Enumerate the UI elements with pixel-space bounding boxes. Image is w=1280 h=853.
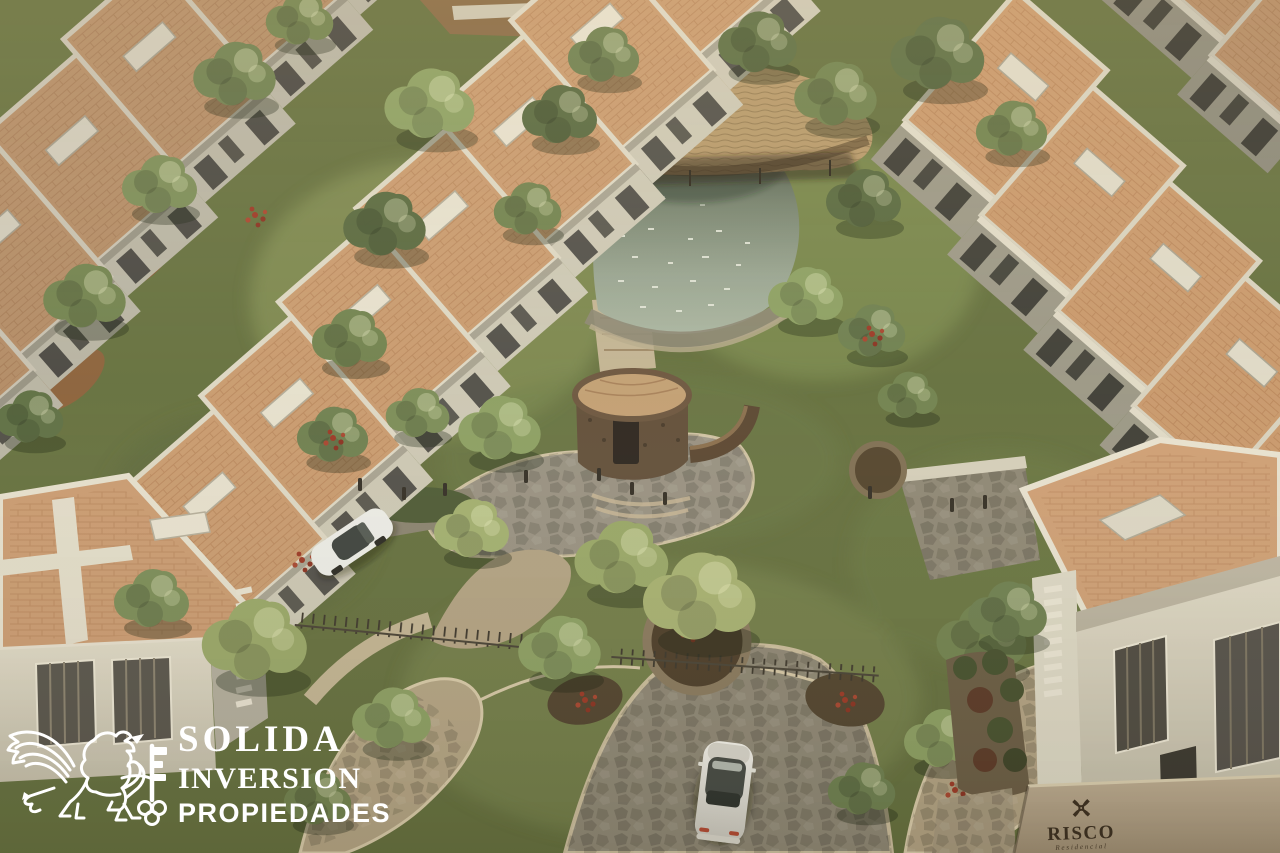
watermark-line2: INVERSION: [178, 764, 391, 794]
watermark-line1: SOLIDA: [178, 721, 391, 758]
winged-lion-key-icon: [4, 718, 174, 830]
watermark-logo: SOLIDA INVERSION PROPIEDADES: [4, 718, 391, 830]
aerial-render: RISCO Residencial: [0, 0, 1280, 853]
watermark-line3: PROPIEDADES: [178, 800, 391, 827]
